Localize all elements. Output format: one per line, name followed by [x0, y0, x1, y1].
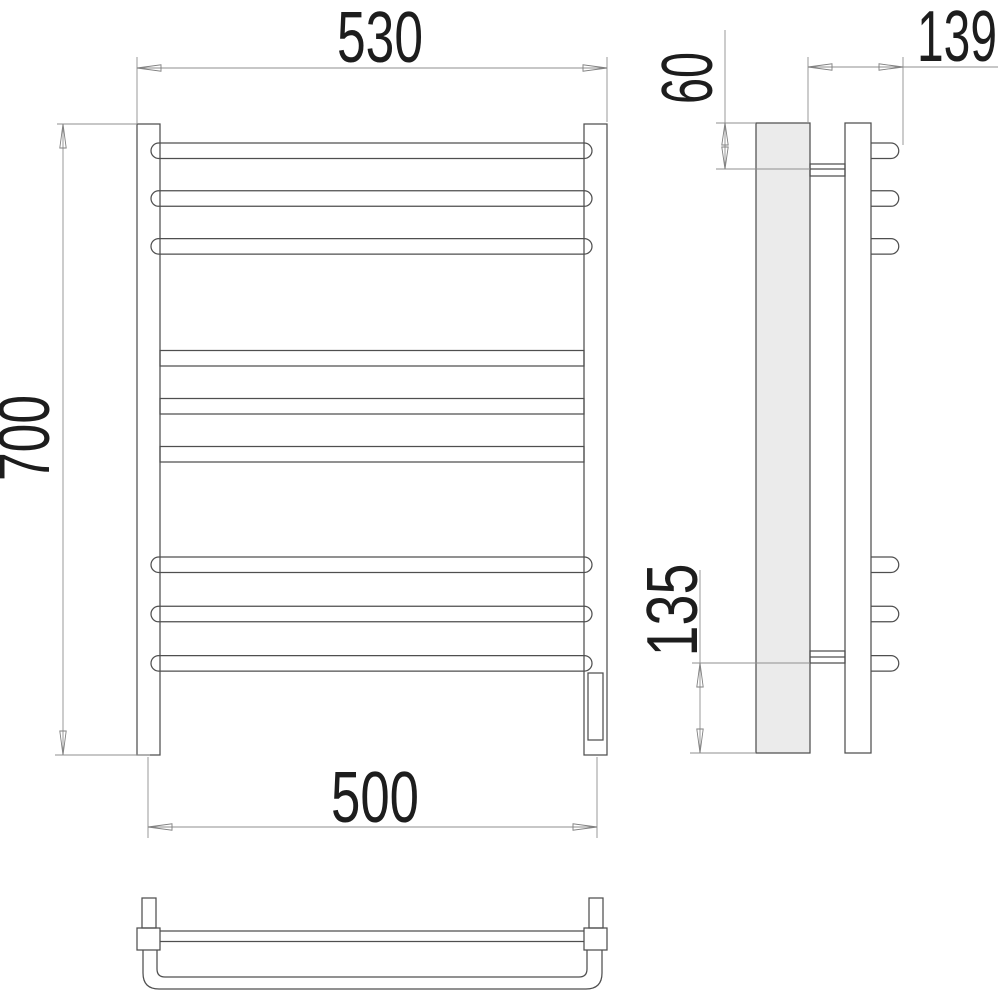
front-view: [137, 124, 607, 755]
rung-stub: [871, 557, 899, 573]
towel-rail-technical-drawing: 530 700 500: [0, 0, 1000, 1000]
bottom-right-stub: [589, 898, 603, 928]
rung: [151, 191, 592, 207]
rung-stub: [871, 191, 899, 207]
rung: [151, 143, 592, 159]
bottom-tube-inner: [157, 950, 587, 977]
bottom-left-stub: [142, 898, 156, 928]
bottom-tube-outer: [143, 950, 602, 989]
rung: [160, 399, 584, 415]
rung-stub: [871, 606, 899, 622]
dim-label-530: 530: [337, 0, 423, 78]
side-wall-profile: [756, 123, 810, 753]
bottom-view: [137, 898, 607, 989]
side-post: [845, 123, 871, 753]
rung-stub: [871, 656, 899, 672]
rung: [151, 557, 592, 573]
front-right-post: [584, 124, 607, 755]
front-left-post: [137, 124, 160, 755]
side-view: [756, 123, 899, 753]
dim-700: 700: [0, 124, 150, 755]
rung: [160, 447, 584, 463]
heating-element: [588, 673, 603, 740]
rung: [151, 239, 592, 255]
bottom-left-block: [137, 928, 160, 950]
bottom-rung-bar: [160, 931, 584, 942]
dim-label-500: 500: [331, 758, 419, 838]
side-bottom-bracket: [810, 651, 845, 663]
dim-label-135: 135: [633, 564, 713, 657]
dim-label-60: 60: [648, 52, 728, 104]
dim-label-139: 139: [917, 0, 997, 77]
rung: [151, 656, 592, 672]
dim-label-700: 700: [0, 395, 65, 481]
bottom-right-block: [584, 928, 607, 950]
dim-530: 530: [137, 0, 607, 124]
side-top-bracket: [810, 164, 845, 176]
drawing-canvas: 530 700 500: [0, 0, 1000, 1000]
rung: [151, 606, 592, 622]
rung: [160, 351, 584, 367]
dim-139: 139: [808, 0, 998, 145]
rung-stub: [871, 239, 899, 255]
rung-stub: [871, 143, 899, 159]
dim-500: 500: [148, 757, 597, 838]
